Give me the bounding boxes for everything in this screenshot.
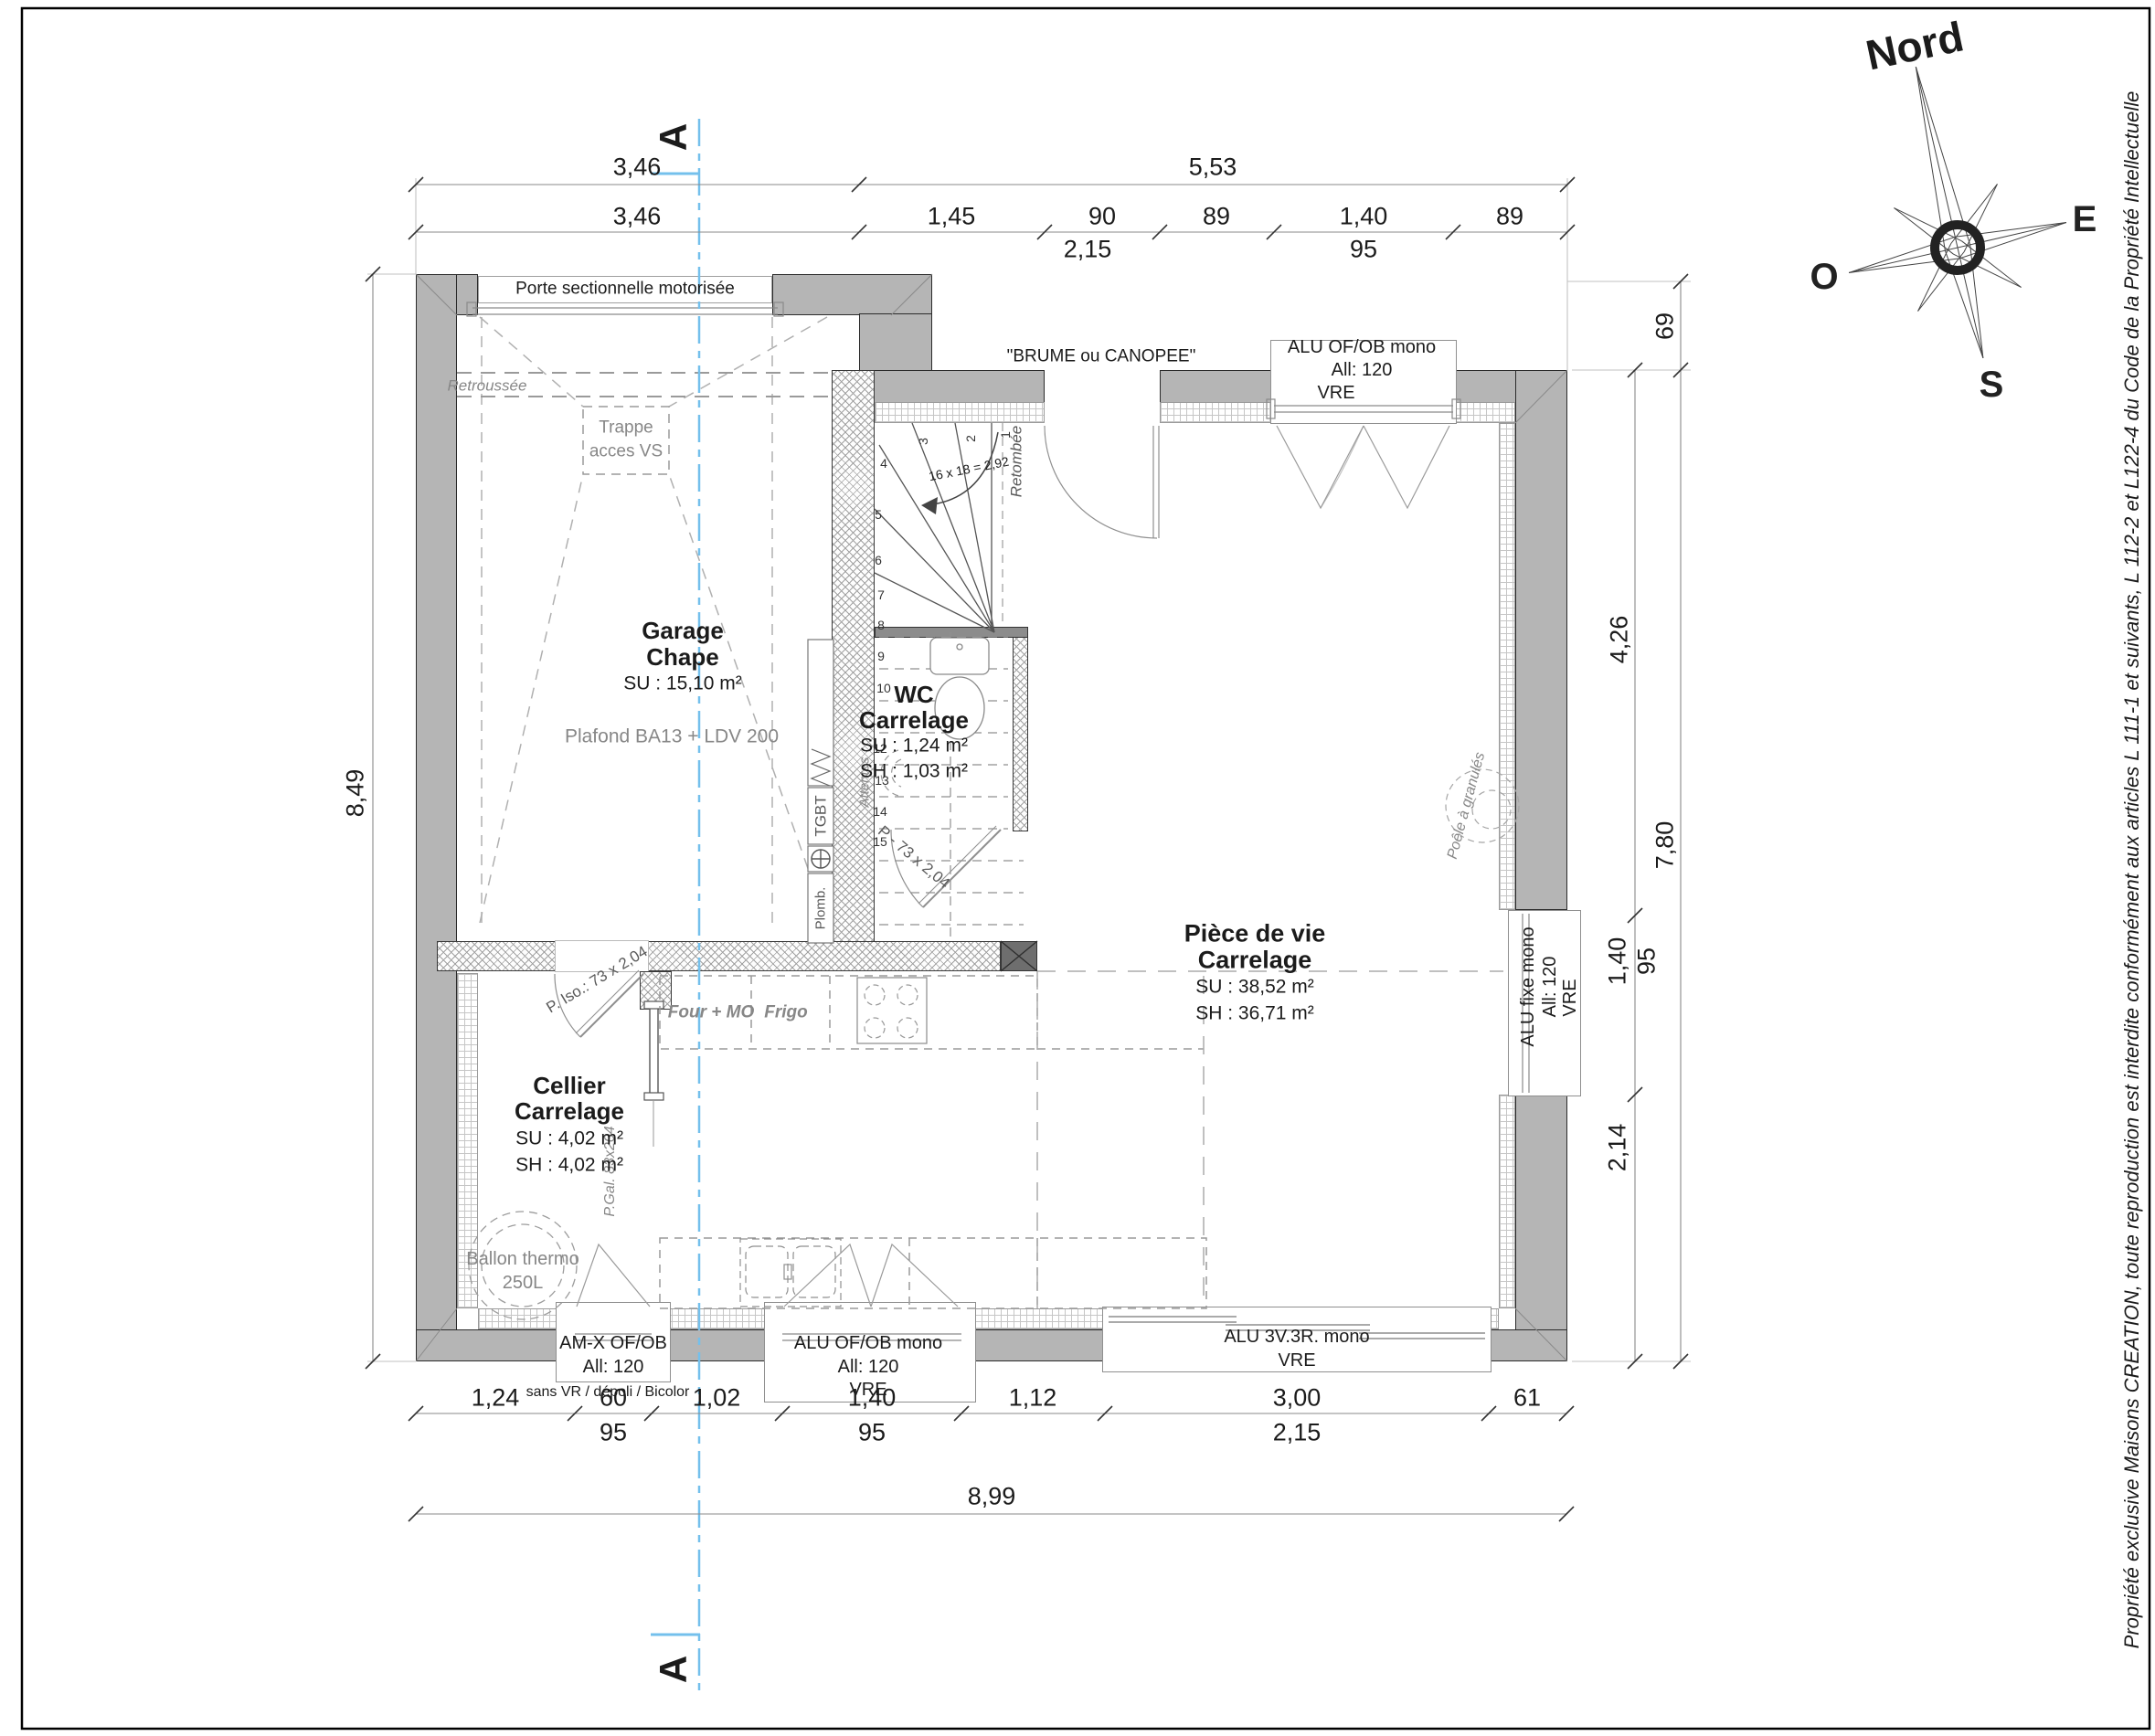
entry-door-label: "BRUME ou CANOPEE" <box>1007 348 1196 365</box>
dim-top2-a: 3,46 <box>613 205 662 229</box>
dim-right-69: 69 <box>1653 312 1678 340</box>
stair-number: 7 <box>877 588 885 601</box>
window-cellier-note: sans VR / dépoli / Bicolor <box>526 1385 690 1400</box>
dim-top1-b: 5,53 <box>1189 155 1237 180</box>
stair-number: 5 <box>875 508 882 521</box>
wall-bottom-3 <box>961 1329 1105 1361</box>
window-frames <box>575 399 1529 1340</box>
garage-door-leaf <box>467 302 783 316</box>
wall-right-upper <box>1515 370 1567 910</box>
wall-garage-top-right <box>772 274 932 315</box>
stair-number: 8 <box>877 619 885 631</box>
dim-bot1-g: 61 <box>1513 1386 1541 1411</box>
wall-top-main-2 <box>1160 370 1274 403</box>
compass-rose <box>1807 42 2091 384</box>
frigo-label: Frigo <box>764 1004 808 1021</box>
window-top-l2: All: 120 <box>1332 361 1393 379</box>
post <box>1001 941 1037 971</box>
ballon-label-1: Ballon thermo <box>466 1250 579 1268</box>
living-sh: SH : 36,71 m² <box>1195 1004 1314 1023</box>
trappe-label-2: acces VS <box>589 443 663 460</box>
dim-top2-e: 1,40 <box>1340 205 1388 229</box>
dim-top3-b: 95 <box>1350 238 1377 262</box>
wall-right-lower <box>1515 1095 1567 1361</box>
window-right-l2: All: 120 <box>1541 957 1559 1018</box>
sink-icon <box>740 1239 841 1307</box>
wall-bottom-1 <box>416 1329 575 1361</box>
garage-door-label: Porte sectionnelle motorisée <box>515 281 735 298</box>
stair-number: 2 <box>964 435 977 442</box>
compass-east-label: E <box>2073 201 2097 238</box>
window-right-l1: ALU fixe mono <box>1519 926 1537 1046</box>
stair-number: 3 <box>917 438 929 445</box>
window-living-l2: VRE <box>1278 1351 1315 1370</box>
dim-bot1-f: 3,00 <box>1273 1386 1322 1411</box>
lining-right-lower <box>1499 1095 1515 1308</box>
window-top-l3: VRE <box>1317 384 1354 402</box>
wall-kitchen-pier <box>640 971 672 1010</box>
living-name: Pièce de vie <box>1184 922 1326 947</box>
dim-top2-c: 90 <box>1088 205 1116 229</box>
lining-top-2 <box>1160 402 1274 423</box>
stair-number: 6 <box>875 554 882 566</box>
garage-finish: Chape <box>646 645 718 669</box>
section-line <box>651 119 700 1695</box>
cellier-su: SU : 4,02 m² <box>515 1129 623 1149</box>
window-kitchen-l1: ALU OF/OB mono <box>794 1334 942 1352</box>
dim-left-total: 8,49 <box>344 769 368 818</box>
living-finish: Carrelage <box>1198 948 1312 973</box>
wall-wc-top <box>875 627 1028 638</box>
compass-north-label: Nord <box>1863 15 1968 76</box>
dim-bottom-total: 8,99 <box>968 1485 1016 1509</box>
section-marker-bottom: A <box>654 1656 693 1683</box>
dim-right-95: 95 <box>1635 947 1660 975</box>
compass-ring <box>1935 225 1980 270</box>
dim-bot1-c: 1,02 <box>693 1386 741 1411</box>
garage-name: Garage <box>642 619 724 642</box>
dim-top3-a: 2,15 <box>1064 238 1112 262</box>
wall-bottom-2 <box>652 1329 782 1361</box>
lining-bottom-3 <box>961 1308 1105 1329</box>
kitchen-counter-bottom <box>660 1238 1206 1308</box>
window-cellier-l1: AM-X OF/OB <box>559 1334 667 1352</box>
trappe-label-1: Trappe <box>599 419 653 437</box>
lining-bottom-2 <box>652 1308 782 1329</box>
ballon-label-2: 250L <box>503 1274 544 1292</box>
wall-garage-bottom <box>437 941 1001 971</box>
dim-bot2-b: 95 <box>858 1421 886 1445</box>
wall-wc-east <box>1013 629 1028 831</box>
four-label: Four + MO <box>668 1004 754 1021</box>
stair-number: 4 <box>880 457 887 470</box>
cellier-finish: Carrelage <box>515 1099 624 1123</box>
compass-west-label: O <box>1810 259 1838 295</box>
lining-top-1 <box>875 402 1045 423</box>
wc-su: SU : 1,24 m² <box>860 736 968 756</box>
dim-top2-b: 1,45 <box>928 205 976 229</box>
tgbt-label: TGBT <box>813 795 829 836</box>
dim-top1-a: 3,46 <box>613 155 662 180</box>
wc-sh: SH : 1,03 m² <box>860 762 968 781</box>
dim-right-780: 7,80 <box>1653 821 1678 870</box>
dim-right-214: 2,14 <box>1606 1124 1630 1172</box>
window-kitchen-l2: All: 120 <box>838 1358 899 1376</box>
stair-formula: 16 x 18 = 2,92 <box>928 455 1010 483</box>
stair-number: 10 <box>876 682 891 694</box>
wall-garage-connector <box>859 313 932 372</box>
wall-stair-west <box>832 370 875 971</box>
dim-bot1-a: 1,24 <box>472 1386 520 1411</box>
dim-bot2-c: 2,15 <box>1273 1421 1322 1445</box>
wall-miter-lines <box>416 274 1567 1361</box>
casement-opening-symbols <box>577 426 1449 1307</box>
poele-label: Poêle à granulés <box>1446 751 1489 861</box>
dim-right-426: 4,26 <box>1608 616 1632 664</box>
wall-top-main-1 <box>864 370 1045 403</box>
wall-bottom-4 <box>1489 1329 1567 1361</box>
lining-right-upper <box>1499 423 1515 910</box>
compass-south-label: S <box>1980 366 2004 403</box>
stair-number: 1 <box>999 431 1012 439</box>
dim-top2-d: 89 <box>1203 205 1230 229</box>
entry-door <box>1045 426 1159 538</box>
garage-su: SU : 15,10 m² <box>623 674 742 693</box>
stair-number: 14 <box>873 805 887 818</box>
dim-top2-f: 89 <box>1496 205 1523 229</box>
wall-left <box>416 274 457 1361</box>
living-su: SU : 38,52 m² <box>1195 978 1314 997</box>
dim-bot1-e: 1,12 <box>1009 1386 1057 1411</box>
window-living-l1: ALU 3V.3R. mono <box>1224 1328 1369 1346</box>
plomb-label: Plomb. <box>814 887 828 930</box>
pocket-door <box>644 1001 663 1147</box>
cooktop-icon <box>857 978 927 1043</box>
window-kitchen-l3: VRE <box>849 1381 886 1399</box>
wc-door-label: P - 73 x 2,04 <box>876 823 953 892</box>
wc-door <box>891 826 1001 907</box>
dim-bot2-a: 95 <box>600 1421 627 1445</box>
cellier-name: Cellier <box>533 1074 606 1097</box>
copyright-text: Propriété exclusive Maisons CREATION, to… <box>2122 91 2142 1649</box>
cellier-sh: SH : 4,02 m² <box>515 1156 623 1175</box>
wc-finish: Carrelage <box>859 708 969 732</box>
section-marker-top: A <box>654 123 693 151</box>
window-top-l1: ALU OF/OB mono <box>1288 338 1436 356</box>
window-cellier-l2: All: 120 <box>583 1358 644 1376</box>
retroussee-label: Retroussée <box>448 378 527 394</box>
floor-plan-sheet: 3,46 5,53 3,46 1,45 90 89 1,40 89 2,15 9… <box>0 0 2155 1736</box>
dim-right-140: 1,40 <box>1606 937 1630 986</box>
lining-top-3 <box>1453 402 1515 423</box>
window-right-l3: VRE <box>1561 979 1579 1016</box>
stair-number: 9 <box>877 650 885 662</box>
garage-ceiling: Plafond BA13 + LDV 200 <box>565 727 779 746</box>
wc-name: WC <box>894 683 933 706</box>
